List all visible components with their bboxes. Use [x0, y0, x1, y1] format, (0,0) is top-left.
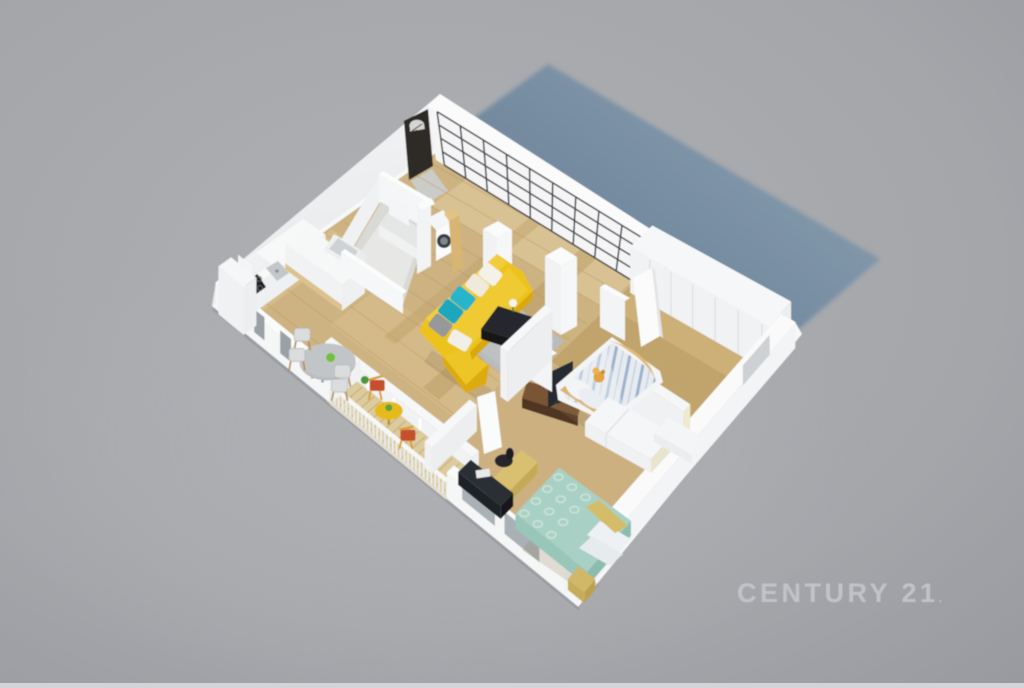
svg-text:CENTURY 21.: CENTURY 21. — [737, 578, 945, 608]
